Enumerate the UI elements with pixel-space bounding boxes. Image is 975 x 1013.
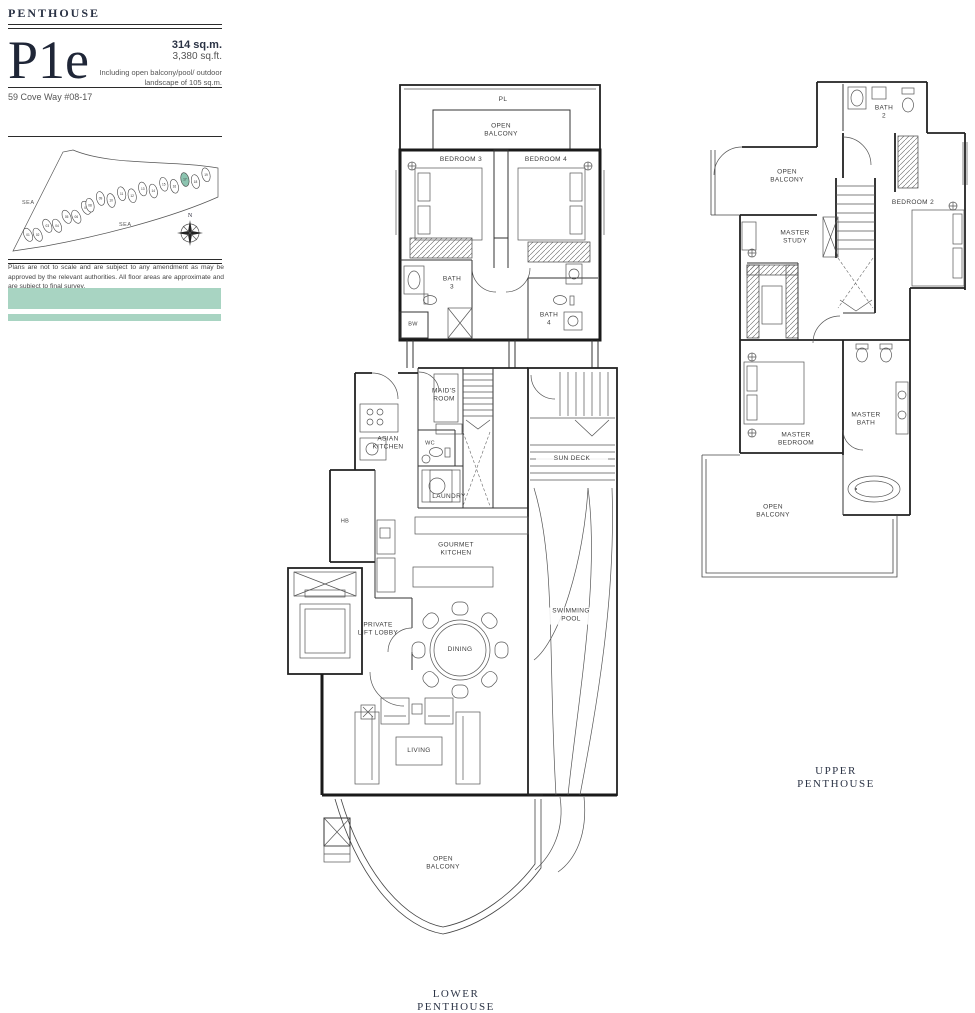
room-label-bw: BW bbox=[403, 321, 423, 328]
room-label-wc: WC bbox=[420, 440, 440, 447]
room-label-open-balcony-bottom: OPEN BALCONY bbox=[417, 856, 469, 873]
room-label-maids-room: MAID'S ROOM bbox=[424, 388, 464, 405]
room-label-bedroom-2: BEDROOM 2 bbox=[878, 199, 948, 207]
room-label-swimming-pool: SWIMMING POOL bbox=[542, 608, 600, 625]
room-label-bedroom-3: BEDROOM 3 bbox=[426, 156, 496, 164]
floor-plan-page: PENTHOUSE P1e 314 sq.m. 3,380 sq.ft. Inc… bbox=[0, 0, 975, 1013]
upper-penthouse-title: UPPER PENTHOUSE bbox=[790, 765, 882, 791]
room-label-dining: DINING bbox=[435, 646, 485, 654]
room-label-master-bedroom: MASTER BEDROOM bbox=[764, 432, 828, 449]
room-label-upper-open-balcony-bottom: OPEN BALCONY bbox=[747, 504, 799, 521]
floor-plan-drawing bbox=[0, 0, 975, 1013]
room-label-asian-kitchen: ASIAN KITCHEN bbox=[366, 436, 410, 453]
room-label-bath-3: BATH 3 bbox=[440, 276, 464, 293]
room-label-sun-deck: SUN DECK bbox=[536, 455, 608, 463]
room-label-living: LIVING bbox=[397, 747, 441, 755]
room-label-hb: HB bbox=[335, 518, 355, 525]
lower-penthouse-title: LOWER PENTHOUSE bbox=[410, 988, 502, 1013]
room-label-bedroom-4: BEDROOM 4 bbox=[511, 156, 581, 164]
upper-plan-walls bbox=[702, 82, 967, 577]
room-label-bath-4: BATH 4 bbox=[537, 312, 561, 329]
room-label-bath-2: BATH 2 bbox=[872, 105, 896, 122]
room-label-gourmet-kitchen: GOURMET KITCHEN bbox=[426, 542, 486, 559]
room-label-upper-open-balcony-top: OPEN BALCONY bbox=[761, 169, 813, 186]
room-label-pl: PL bbox=[488, 96, 518, 104]
room-label-master-bath: MASTER BATH bbox=[843, 412, 889, 429]
room-label-open-balcony-top: OPEN BALCONY bbox=[475, 123, 527, 140]
room-label-master-study: MASTER STUDY bbox=[771, 230, 819, 247]
room-label-private-lift-lobby: PRIVATE LIFT LOBBY bbox=[356, 622, 400, 639]
room-label-laundry: LAUNDRY bbox=[419, 493, 479, 501]
